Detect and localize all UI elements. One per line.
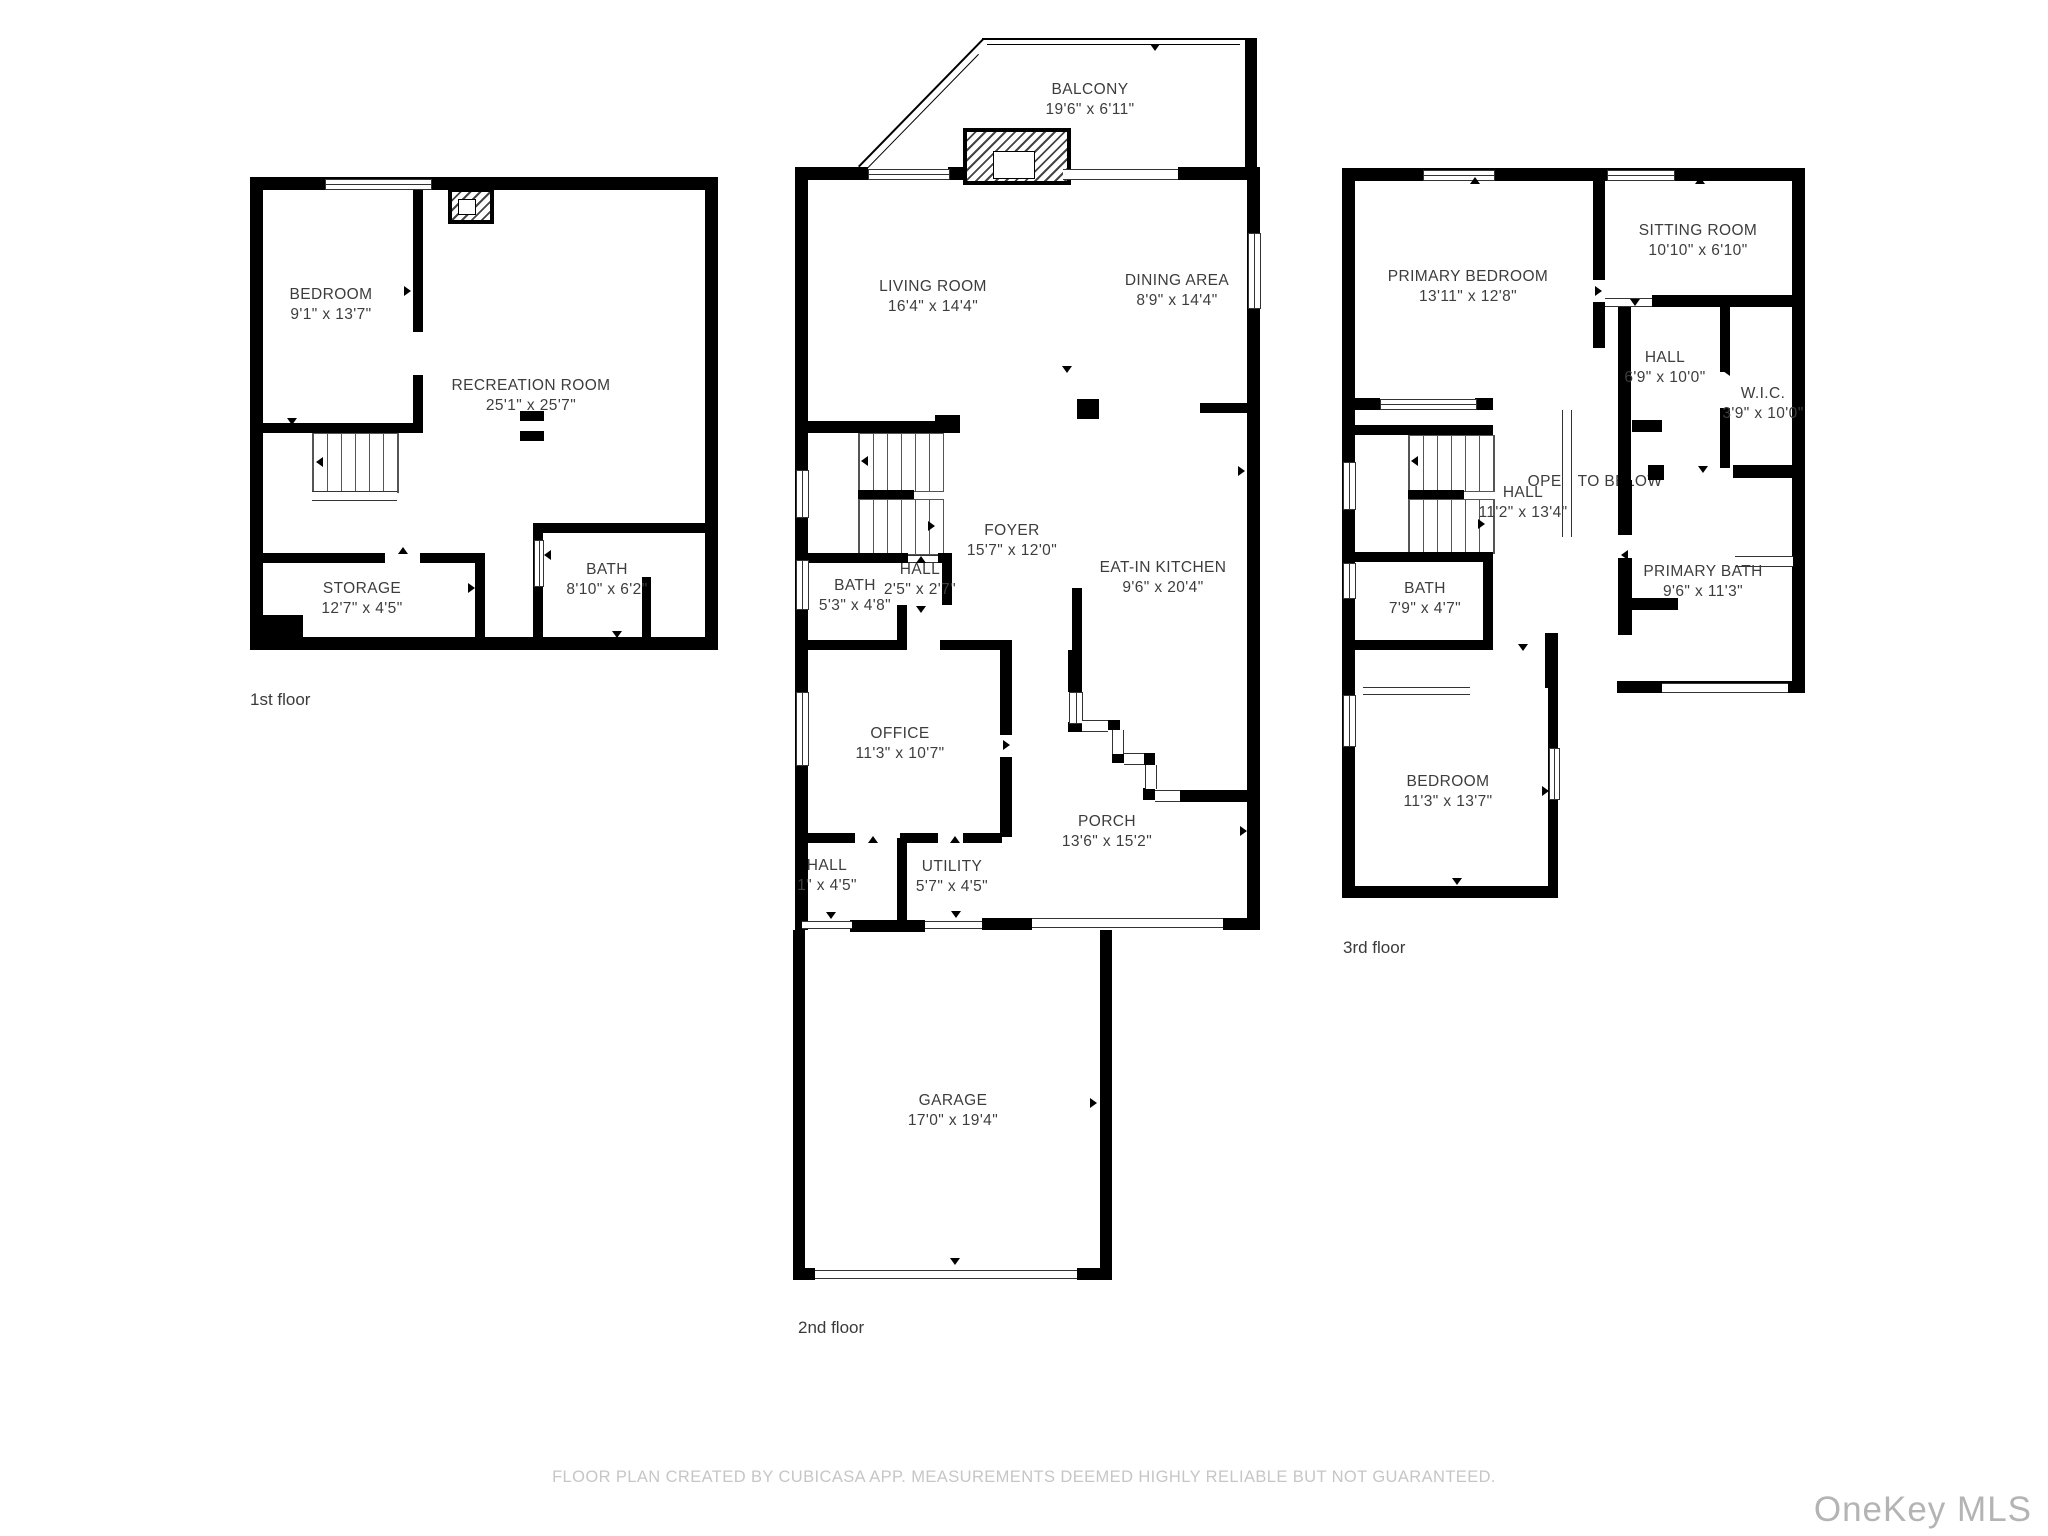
room-dims: 3'9" x 10'0" (1722, 404, 1803, 424)
window (868, 169, 950, 180)
room-name: SITTING ROOM (1639, 221, 1757, 241)
wall (1593, 302, 1605, 348)
wall (940, 640, 1012, 650)
wall (705, 177, 718, 650)
sliding-door (1063, 169, 1178, 180)
wall (935, 415, 960, 433)
wall (963, 833, 1002, 843)
room-dims: 13'6" x 15'2" (1062, 832, 1152, 852)
room-dims: 16'4" x 14'4" (879, 297, 987, 317)
room-name: W.I.C. (1722, 384, 1803, 404)
room-dims: 1" x 4'5" (797, 876, 857, 896)
wall (250, 637, 718, 650)
room-name: BALCONY (1045, 80, 1134, 100)
room-label-hall-lower-f2: HALL 1" x 4'5" (797, 856, 857, 896)
wall (802, 833, 855, 843)
wall (1342, 168, 1803, 181)
wall (1632, 420, 1662, 432)
room-label-hall-mid-f3: HALL 11'2" x 13'4" (1478, 483, 1567, 523)
wall (1144, 753, 1155, 765)
door-marker (1150, 44, 1160, 51)
porch-step (1124, 753, 1144, 765)
room-dims: 12'7" x 4'5" (321, 599, 402, 619)
wall (897, 605, 907, 650)
column-mark (520, 431, 544, 441)
door-marker (951, 911, 961, 918)
door-marker (1238, 466, 1245, 476)
room-name: BEDROOM (1403, 772, 1492, 792)
wall (1475, 398, 1493, 410)
door-marker (544, 550, 551, 560)
stair-direction-arrow (861, 456, 868, 466)
room-label-bath-f2: BATH 5'3" x 4'8" (819, 576, 891, 616)
room-name: PRIMARY BEDROOM (1388, 267, 1548, 287)
room-label-recreation: RECREATION ROOM 25'1" x 25'7" (452, 376, 611, 416)
room-name: HALL (797, 856, 857, 876)
wall (413, 190, 423, 332)
floor-caption-2: 2nd floor (798, 1318, 864, 1338)
window (796, 470, 809, 518)
disclaimer-text: FLOOR PLAN CREATED BY CUBICASA APP. MEAS… (0, 1468, 2048, 1487)
staircase (858, 433, 944, 492)
floor-plan-canvas: BEDROOM 9'1" x 13'7" RECREATION ROOM 25'… (0, 0, 2048, 1536)
room-label-dining: DINING AREA 8'9" x 14'4" (1125, 271, 1229, 311)
wall (1652, 295, 1804, 307)
stair-direction-arrow (316, 457, 323, 467)
room-name: BATH (819, 576, 891, 596)
door-marker (287, 418, 297, 425)
wall (1112, 753, 1124, 763)
room-name: BEDROOM (290, 285, 373, 305)
balcony-edge (982, 38, 1245, 40)
door-marker (610, 526, 620, 533)
wall (263, 553, 385, 563)
room-label-utility: UTILITY 5'7" x 4'5" (916, 857, 988, 897)
door-marker (256, 286, 263, 296)
window (796, 692, 809, 766)
room-name: HALL (1478, 483, 1567, 503)
wall (1593, 168, 1605, 280)
wall (1245, 38, 1257, 169)
room-name: OFFICE (855, 724, 944, 744)
doorway (802, 921, 852, 929)
window (1069, 692, 1083, 724)
room-dims: 9'6" x 11'3" (1643, 582, 1762, 602)
room-dims: 2'5" x 2'7" (884, 580, 956, 600)
room-dims: 15'7" x 12'0" (967, 541, 1057, 561)
room-name: HALL (1624, 348, 1705, 368)
room-dims: 7'9" x 4'7" (1389, 599, 1461, 619)
room-name: BATH (1389, 579, 1461, 599)
column (1077, 399, 1099, 419)
room-dims: 17'0" x 19'4" (908, 1111, 998, 1131)
wall (1077, 1268, 1112, 1280)
stair-landing-wall (1408, 490, 1464, 499)
wall (1143, 788, 1155, 800)
door-marker (1345, 288, 1352, 298)
room-name: PRIMARY BATH (1643, 562, 1762, 582)
door-marker (1452, 878, 1462, 885)
window (534, 540, 544, 587)
wall (1000, 757, 1012, 837)
room-label-porch: PORCH 13'6" x 15'2" (1062, 812, 1152, 852)
room-name: GARAGE (908, 1091, 998, 1111)
window (1343, 563, 1356, 599)
wall (1348, 425, 1493, 435)
room-name: LIVING ROOM (879, 277, 987, 297)
room-label-kitchen: EAT-IN KITCHEN 9'6" x 20'4" (1100, 558, 1227, 598)
window (1380, 399, 1477, 410)
door-marker (1621, 550, 1628, 560)
room-dims: 9'1" x 13'7" (290, 305, 373, 325)
wall (1618, 480, 1632, 535)
wall (1068, 650, 1082, 692)
room-label-bath-f3: BATH 7'9" x 4'7" (1389, 579, 1461, 619)
wall (1180, 790, 1247, 802)
room-dims: 10'10" x 6'10" (1639, 241, 1757, 261)
room-label-foyer: FOYER 15'7" x 12'0" (967, 521, 1057, 561)
wall (795, 167, 808, 930)
room-dims: 5'3" x 4'8" (819, 596, 891, 616)
door-marker (1062, 366, 1072, 373)
floor-caption-1: 1st floor (250, 690, 310, 710)
room-dims: 11'3" x 10'7" (855, 744, 944, 764)
wall (1618, 558, 1632, 635)
room-name: FOYER (967, 521, 1057, 541)
room-label-bedroom-f3: BEDROOM 11'3" x 13'7" (1403, 772, 1492, 812)
stair-landing (312, 491, 397, 501)
window (1343, 462, 1356, 510)
staircase (312, 433, 399, 493)
room-dims: 8'9" x 14'4" (1125, 291, 1229, 311)
wall (1108, 720, 1120, 730)
door-marker (1412, 554, 1422, 561)
door-marker (1595, 286, 1602, 296)
room-dims: 6'9" x 10'0" (1624, 368, 1705, 388)
door-marker (1345, 786, 1352, 796)
room-name: BATH (566, 560, 647, 580)
door-marker (1412, 642, 1422, 649)
door-marker (950, 1258, 960, 1265)
porch-step (1145, 765, 1157, 789)
wall (897, 838, 907, 920)
door-marker (797, 288, 804, 298)
wall (1792, 168, 1805, 693)
garage-door (815, 1270, 1077, 1279)
door-marker (916, 606, 926, 613)
door-marker (868, 836, 878, 843)
wall (1200, 403, 1247, 413)
door-marker (254, 583, 261, 593)
room-label-storage: STORAGE 12'7" x 4'5" (321, 579, 402, 619)
door-marker (1630, 299, 1640, 306)
stair-landing-wall (858, 490, 914, 499)
room-label-hall-upper-f3: HALL 6'9" x 10'0" (1624, 348, 1705, 388)
porch-step (1112, 730, 1124, 754)
window (1549, 748, 1560, 800)
door-marker (1090, 1098, 1097, 1108)
room-name: DINING AREA (1125, 271, 1229, 291)
door-marker (797, 1098, 804, 1108)
room-name: RECREATION ROOM (452, 376, 611, 396)
porch-open-edge (1032, 918, 1223, 928)
door-marker (468, 583, 475, 593)
window (1607, 170, 1675, 181)
door-marker (950, 836, 960, 843)
wall (1100, 930, 1112, 1280)
room-label-garage: GARAGE 17'0" x 19'4" (908, 1091, 998, 1131)
room-dims: 9'6" x 20'4" (1100, 578, 1227, 598)
room-name: PORCH (1062, 812, 1152, 832)
stair-direction-arrow (928, 521, 935, 531)
door-marker (612, 631, 622, 638)
room-label-balcony: BALCONY 19'6" x 6'11" (1045, 80, 1134, 120)
watermark: OneKey MLS (1814, 1490, 2032, 1530)
wall (1342, 886, 1558, 898)
window (325, 179, 432, 190)
wall (793, 1268, 815, 1280)
room-dims: 5'7" x 4'5" (916, 877, 988, 897)
wall (1072, 588, 1082, 650)
floor-caption-3: 3rd floor (1343, 938, 1405, 958)
wall (1355, 398, 1380, 410)
door-marker (398, 547, 408, 554)
room-label-bedroom-f1: BEDROOM 9'1" x 13'7" (290, 285, 373, 325)
room-dims: 19'6" x 6'11" (1045, 100, 1134, 120)
room-dims: 25'1" x 25'7" (452, 396, 611, 416)
door-marker (404, 286, 411, 296)
room-label-hall-upper-f2: HALL 2'5" x 2'7" (884, 560, 956, 600)
room-dims: 13'11" x 12'8" (1388, 287, 1548, 307)
door-marker (1240, 826, 1247, 836)
door-marker (916, 556, 926, 563)
door-marker (506, 180, 516, 187)
wall (1223, 918, 1257, 930)
porch-step (1082, 720, 1108, 732)
wall (1618, 307, 1631, 480)
door-marker (1695, 177, 1705, 184)
wall (948, 167, 963, 180)
room-name: HALL (884, 560, 956, 580)
door-marker (1518, 644, 1528, 651)
wall (850, 920, 925, 932)
porch-step (1155, 790, 1180, 802)
doorway (1605, 298, 1652, 307)
balcony-edge-inner (987, 44, 1240, 45)
door-marker (1542, 786, 1549, 796)
wall (1178, 167, 1255, 180)
door-marker (1723, 366, 1730, 376)
window (1423, 170, 1495, 181)
balcony-edge-inner (863, 54, 979, 173)
wall (805, 421, 935, 433)
door-marker (1698, 466, 1708, 473)
room-label-primary-bedroom: PRIMARY BEDROOM 13'11" x 12'8" (1388, 267, 1548, 307)
room-label-office: OFFICE 11'3" x 10'7" (855, 724, 944, 764)
stair-direction-arrow (1411, 456, 1418, 466)
window (1248, 233, 1261, 309)
room-dims: 11'3" x 13'7" (1403, 792, 1492, 812)
room-name: EAT-IN KITCHEN (1100, 558, 1227, 578)
window-low (1662, 683, 1788, 693)
wall (250, 177, 263, 650)
doorway (925, 921, 982, 929)
room-name: STORAGE (321, 579, 402, 599)
room-dims: 8'10" x 6'2" (566, 580, 647, 600)
room-label-living: LIVING ROOM 16'4" x 14'4" (879, 277, 987, 317)
fireplace-firebox (993, 151, 1035, 179)
door-marker (826, 912, 836, 919)
wall (1648, 465, 1664, 480)
room-label-wic: W.I.C. 3'9" x 10'0" (1722, 384, 1803, 424)
doorway (1363, 687, 1470, 695)
room-label-primary-bath: PRIMARY BATH 9'6" x 11'3" (1643, 562, 1762, 602)
fireplace-firebox (458, 199, 476, 215)
window (1343, 695, 1356, 747)
room-label-sitting: SITTING ROOM 10'10" x 6'10" (1639, 221, 1757, 261)
wall (1483, 562, 1493, 650)
door-marker (845, 643, 855, 650)
wall (1720, 307, 1730, 372)
wall (1000, 650, 1012, 735)
room-name: UTILITY (916, 857, 988, 877)
wall (982, 918, 1032, 930)
wall (475, 553, 485, 637)
window (796, 560, 809, 610)
wall (1733, 465, 1803, 478)
door-marker (1470, 177, 1480, 184)
room-label-bath-f1: BATH 8'10" x 6'2" (566, 560, 647, 600)
chimney-block (250, 615, 303, 647)
door-marker (1003, 740, 1010, 750)
room-dims: 11'2" x 13'4" (1478, 503, 1567, 523)
